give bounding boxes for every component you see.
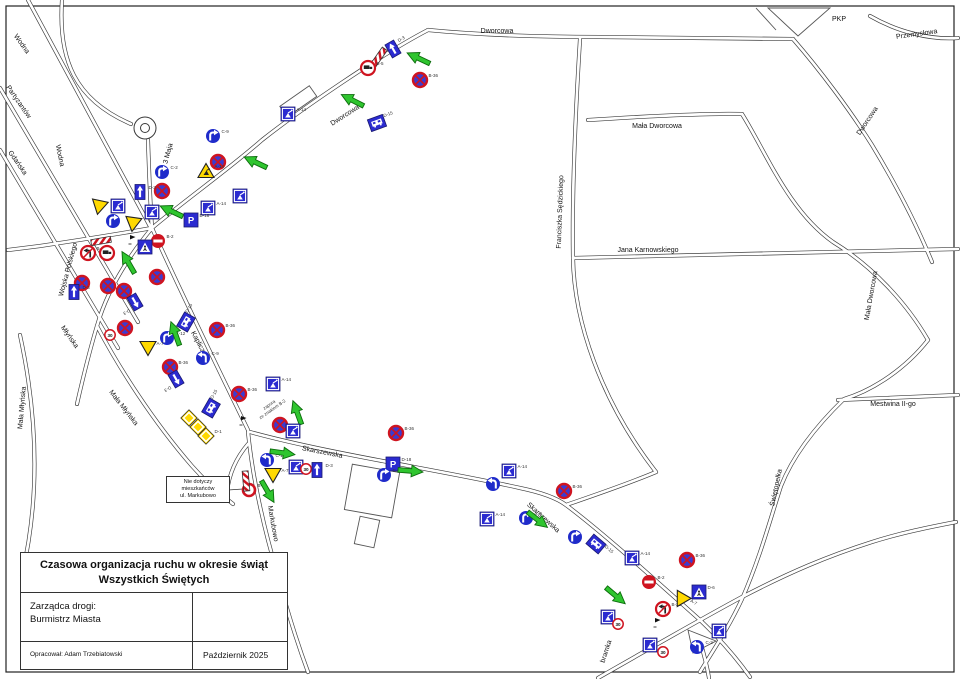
- street-label: Franciszka Sędzickiego: [556, 175, 566, 249]
- railway-area: [756, 8, 830, 36]
- sign-bus-stop-icon: D-15: [367, 110, 397, 132]
- sign-roadworks-icon: A-14: [480, 512, 506, 526]
- note-leader-line: [228, 489, 243, 490]
- svg-text:A-14: A-14: [217, 201, 227, 206]
- author-cell: Opracował: Adam Trzebiatowski: [21, 642, 193, 669]
- svg-text:D-3: D-3: [149, 185, 157, 190]
- svg-text:C-2: C-2: [171, 165, 179, 170]
- sign-one-way-icon: D-3: [158, 370, 184, 394]
- manager-label: Zarządca drogi:: [30, 600, 192, 613]
- exemption-note: Nie dotyczy mieszkańców ul. Markubowo: [166, 476, 230, 503]
- sign-mandatory-turn-right-icon: C-9: [206, 129, 229, 143]
- svg-text:A-14: A-14: [282, 377, 292, 382]
- street-label: Młyńska: [59, 325, 80, 350]
- svg-text:30: 30: [303, 467, 309, 472]
- sign-speed-limit-icon: 30: [613, 619, 623, 629]
- svg-text:D-3: D-3: [163, 385, 172, 393]
- buildings: [280, 86, 716, 653]
- sign-one-way-icon: D-3: [312, 463, 333, 478]
- svg-text:D-1: D-1: [215, 429, 223, 434]
- sign-pedestrian-crossing-icon: [138, 240, 152, 254]
- sign-roadworks-icon: [643, 638, 657, 652]
- sign-mandatory-turn-right-icon: [106, 214, 120, 228]
- sign-roadworks-icon: [145, 205, 159, 219]
- sign-roadworks-icon: A-14: [625, 551, 651, 565]
- sign-yield-icon: A-7: [140, 341, 164, 356]
- title-block: Czasowa organizacja ruchu w okresie świą…: [20, 552, 288, 670]
- sign-no-stopping-icon: [101, 279, 115, 293]
- note-line2: mieszkańców: [168, 486, 228, 493]
- svg-text:A-14: A-14: [641, 551, 651, 556]
- street-label: Mestwina II-go: [870, 401, 916, 408]
- svg-text:D-6: D-6: [708, 585, 716, 590]
- svg-text:D-3: D-3: [326, 463, 334, 468]
- sign-one-way-icon: D-3: [135, 185, 156, 200]
- plan-title: Czasowa organizacja ruchu w okresie świą…: [21, 553, 287, 593]
- svg-text:P: P: [188, 215, 195, 226]
- svg-text:30: 30: [660, 650, 666, 655]
- sign-mandatory-turn-left-icon: C-2: [690, 640, 713, 654]
- plan-title-line1: Czasowa organizacja ruchu w okresie świą…: [25, 558, 283, 573]
- barrier-icon: [242, 471, 250, 491]
- sign-roadworks-icon: A-14: [266, 377, 292, 391]
- sign-speed-limit-icon: 30: [301, 464, 311, 474]
- sign-speed-limit-icon: 30: [658, 647, 668, 657]
- street-label: Mała Młyńska: [17, 386, 28, 429]
- svg-text:C-9: C-9: [212, 351, 220, 356]
- sign-no-stopping-icon: [150, 270, 164, 284]
- sign-no-entry-icon: B-2: [151, 234, 174, 248]
- sign-yield-icon: [90, 199, 109, 216]
- plan-title-line2: Wszystkich Świętych: [25, 573, 283, 588]
- manager-name: Burmistrz Miasta: [30, 613, 192, 626]
- sign-no-stopping-icon: B-36: [680, 553, 706, 567]
- sign-mandatory-turn-left-icon: [486, 477, 500, 491]
- street-label: Dworcowa: [330, 104, 361, 128]
- road-manager-cell: Zarządca drogi: Burmistrz Miasta: [21, 593, 193, 641]
- sign-no-stopping-icon: [155, 184, 169, 198]
- barrier-annotation: zapora ze znakiem B-2: [255, 394, 287, 421]
- street-label: Mała Dworcowa: [864, 271, 880, 321]
- svg-text:D-18: D-18: [200, 213, 210, 218]
- svg-text:D-3: D-3: [122, 308, 131, 316]
- sign-roadworks-icon: [286, 424, 300, 438]
- sign-bus-stop-icon: D-15: [201, 388, 226, 418]
- street-label: Jana Karnowskiego: [617, 247, 678, 254]
- svg-text:A-7: A-7: [282, 468, 290, 473]
- sign-roadworks-icon: A-14: [502, 464, 528, 478]
- street-label: Wodna: [12, 33, 30, 55]
- sign-no-stopping-icon: B-36: [413, 73, 439, 87]
- sign-mandatory-turn-right-icon: C-2: [155, 165, 178, 179]
- svg-text:B-36: B-36: [405, 426, 415, 431]
- svg-text:B-36: B-36: [248, 387, 258, 392]
- sign-roadworks-icon: [233, 189, 247, 203]
- street-label: Wodna: [54, 144, 65, 167]
- svg-text:A-14: A-14: [496, 512, 506, 517]
- svg-text:A-7: A-7: [157, 341, 165, 346]
- street-label: PKP: [832, 16, 846, 23]
- street-label: bramka: [600, 639, 614, 663]
- green-direction-arrow: [405, 48, 433, 69]
- empty-cell: [193, 593, 287, 641]
- green-direction-arrow: [287, 399, 306, 426]
- street-label: Dworcowa: [481, 28, 514, 35]
- date-cell: Październik 2025: [193, 642, 287, 669]
- street-label: Dworcowa: [856, 106, 880, 137]
- svg-text:A-14: A-14: [215, 164, 225, 169]
- sign-no-stopping-icon: B-36: [557, 484, 583, 498]
- flag-marker-icon: [129, 235, 136, 244]
- sign-no-stopping-icon: B-36: [232, 387, 258, 401]
- sign-no-stopping-icon: [273, 418, 287, 432]
- svg-text:D-3: D-3: [83, 285, 91, 290]
- sign-no-stopping-icon: B-36: [210, 323, 236, 337]
- green-direction-arrow: [602, 583, 629, 608]
- svg-text:B-5: B-5: [377, 61, 385, 66]
- street-label: Mała Dworcowa: [632, 123, 682, 130]
- svg-text:C-9: C-9: [222, 129, 230, 134]
- svg-text:A-14: A-14: [518, 464, 528, 469]
- svg-text:D-18: D-18: [402, 457, 412, 462]
- svg-text:B-36: B-36: [573, 484, 583, 489]
- sign-no-trucks-icon: B-5: [361, 61, 384, 75]
- sign-bus-stop-icon: D-15: [586, 533, 615, 560]
- sign-no-trucks-icon: [100, 246, 114, 260]
- svg-text:D-15: D-15: [383, 110, 394, 118]
- sign-no-stopping-icon: B-36: [389, 426, 415, 440]
- svg-text:30: 30: [615, 622, 621, 627]
- sign-roadworks-icon: [712, 624, 726, 638]
- svg-text:B-36: B-36: [696, 553, 706, 558]
- note-line1: Nie dotyczy: [168, 479, 228, 486]
- svg-text:30: 30: [107, 333, 113, 338]
- sign-no-stopping-icon: [117, 284, 131, 298]
- street-label: 3 Maja: [162, 142, 174, 164]
- svg-text:B-2: B-2: [658, 575, 666, 580]
- sign-roadworks-icon: A-14: [281, 107, 307, 121]
- street-label: Mała Młyńska: [107, 389, 139, 427]
- note-line3: ul. Markubowo: [168, 493, 228, 500]
- svg-text:A-14: A-14: [297, 107, 307, 112]
- sign-roadworks-icon: [111, 199, 125, 213]
- svg-text:B-36: B-36: [429, 73, 439, 78]
- svg-text:D-15: D-15: [209, 388, 218, 399]
- traffic-plan-map: DworcowaDworcowaDworcowaPKPPrzemysłowaMa…: [0, 0, 960, 679]
- svg-text:B-36: B-36: [226, 323, 236, 328]
- flag-marker-icon: [654, 618, 661, 627]
- sign-no-stopping-icon: [118, 321, 132, 335]
- sign-pedestrian-crossing-icon: D-6: [692, 585, 715, 599]
- svg-text:C-2: C-2: [706, 640, 714, 645]
- sign-mandatory-turn-right-icon: [568, 530, 582, 544]
- sign-yield-icon: A-7: [265, 468, 289, 483]
- svg-text:B-2: B-2: [167, 234, 175, 239]
- svg-text:B-36: B-36: [179, 360, 189, 365]
- sign-parking-icon: PD-18: [184, 213, 210, 227]
- roundabout: [134, 117, 156, 139]
